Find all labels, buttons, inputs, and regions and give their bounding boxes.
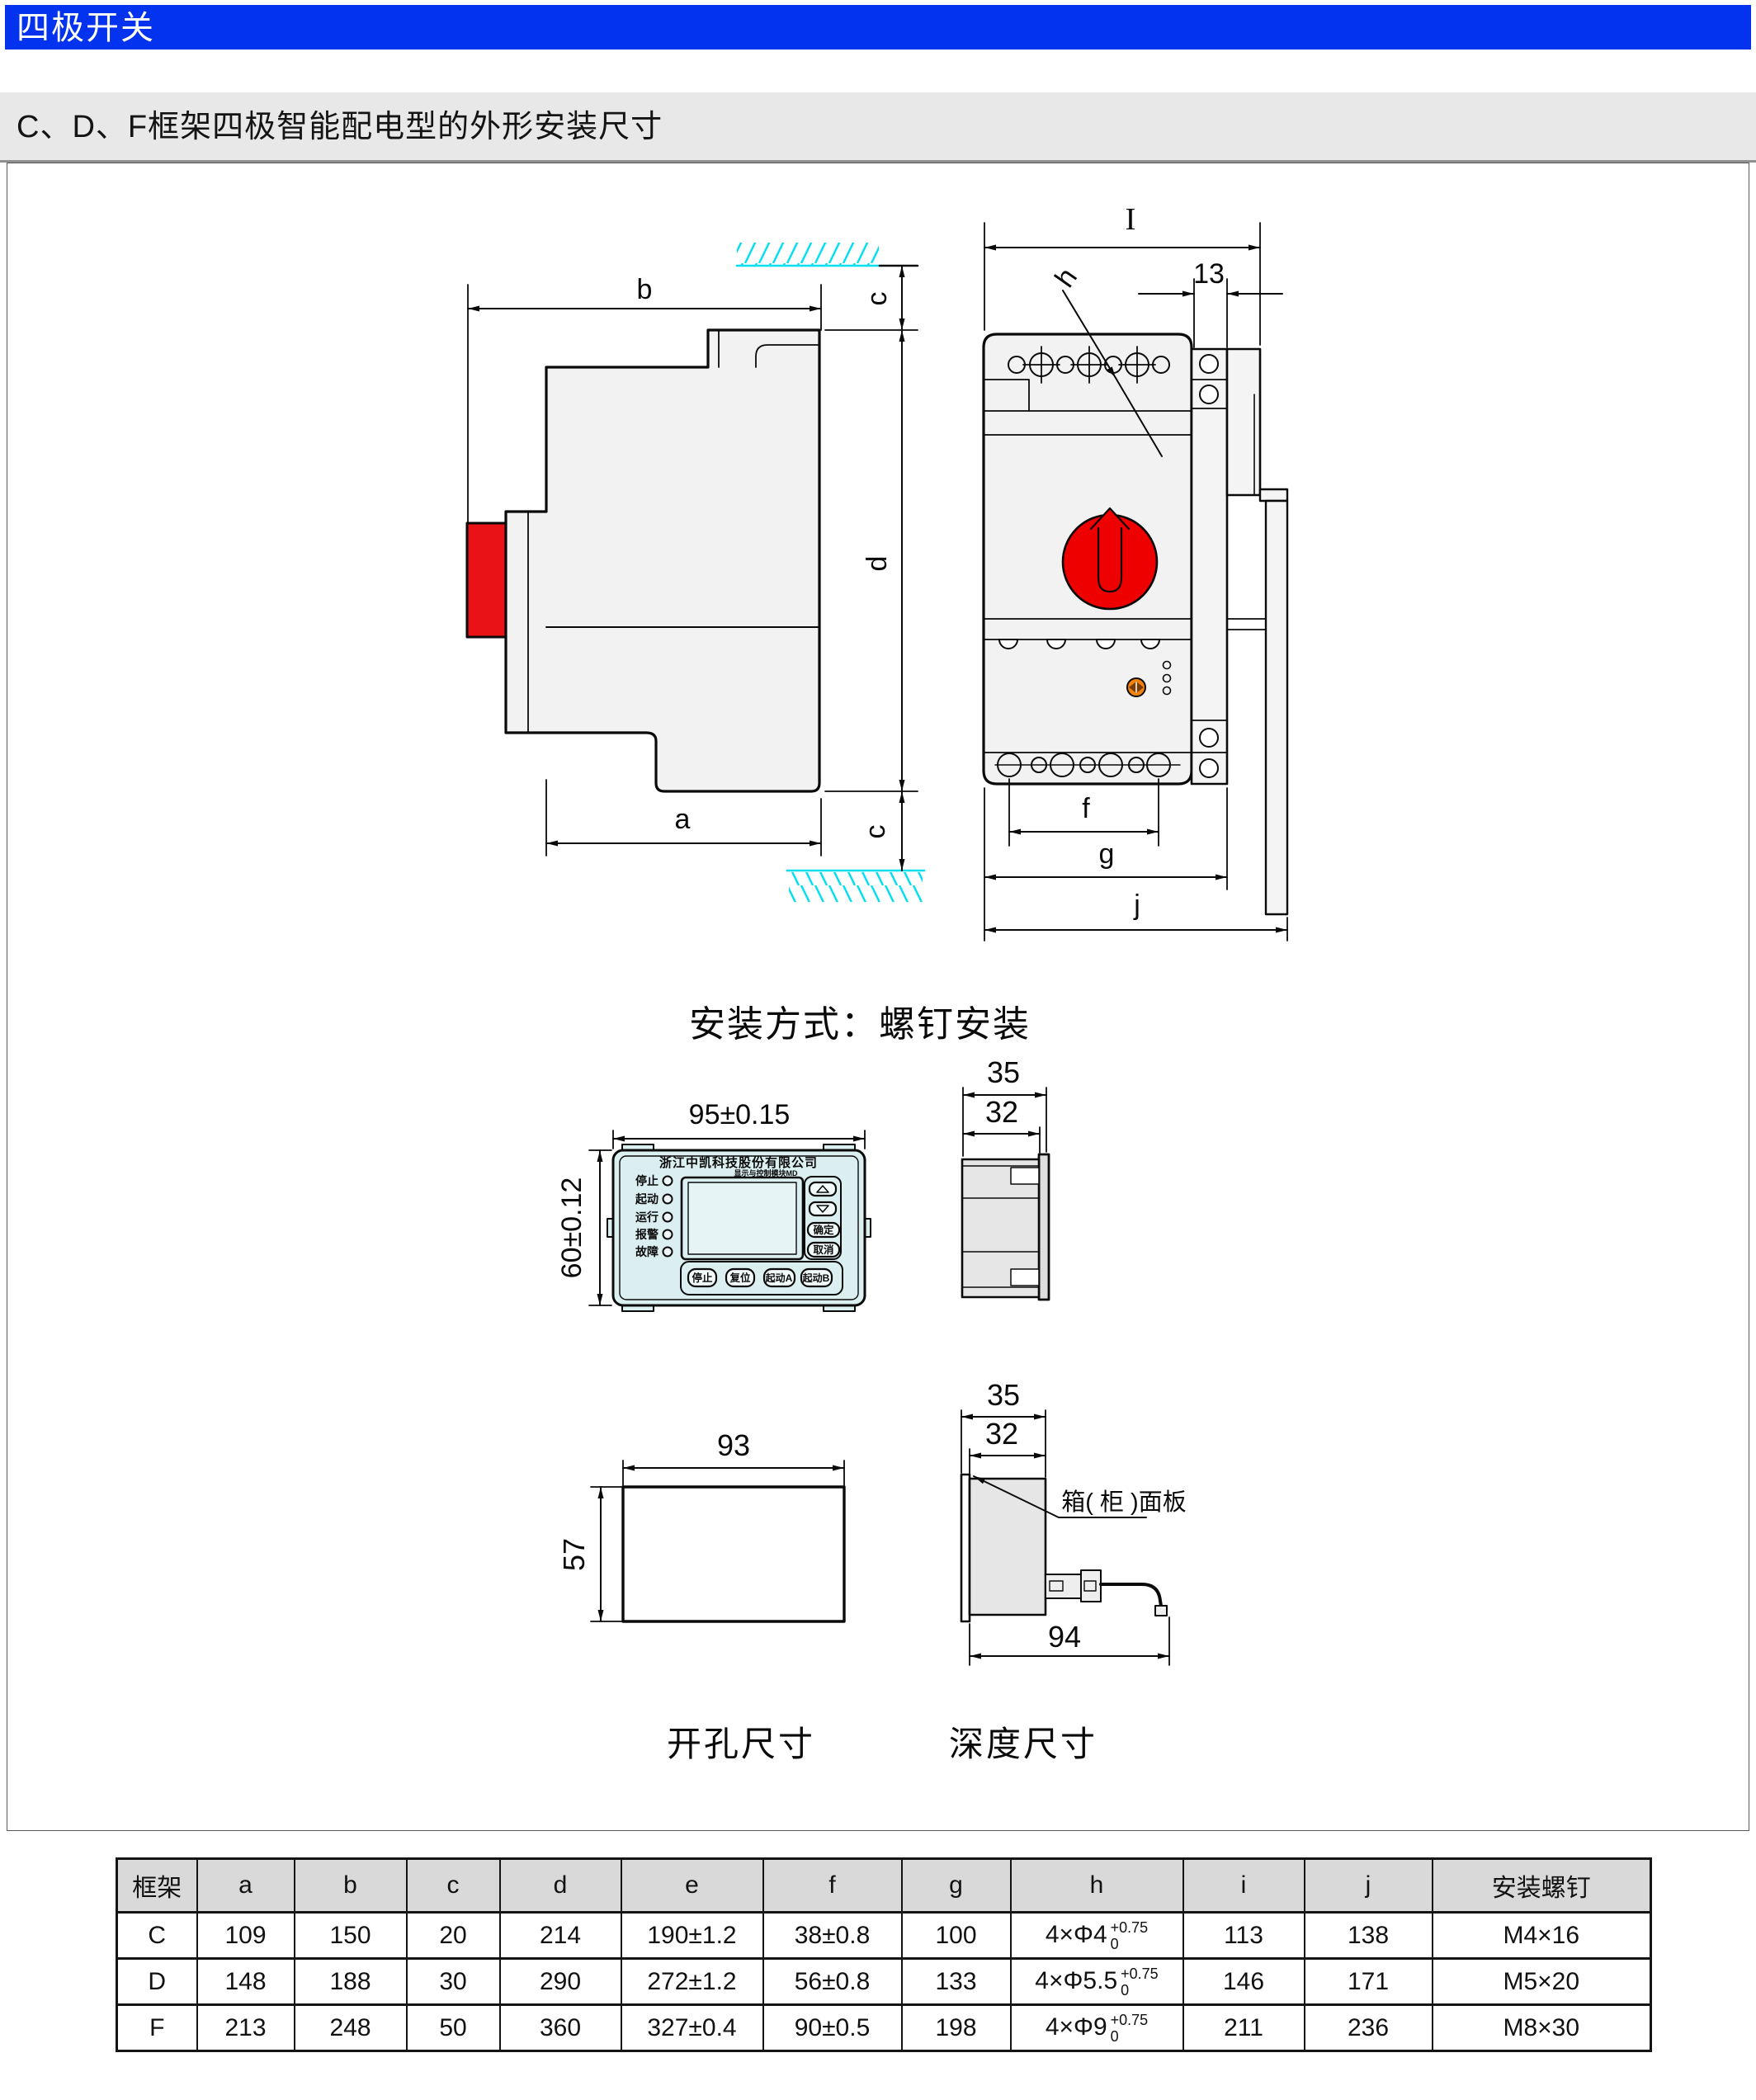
dim-cutout-height (591, 1487, 621, 1621)
cell-c: 50 (407, 2005, 500, 2051)
ok-button-label: 确定 (813, 1224, 834, 1236)
col-j: j (1305, 1859, 1433, 1913)
dim-label-side-32: 32 (985, 1095, 1018, 1129)
col-c: c (407, 1859, 500, 1913)
cell-frame: F (117, 2005, 197, 2051)
dim-label-panel-height: 60±0.12 (556, 1177, 588, 1279)
dim-label-j: j (1133, 890, 1140, 921)
ground-hatch-bottom (787, 871, 924, 902)
cell-a: 213 (197, 2005, 295, 2051)
cell-j: 236 (1305, 2005, 1433, 2051)
start-b-button-label: 起动B (802, 1272, 830, 1284)
col-b: b (295, 1859, 407, 1913)
up-button (810, 1182, 836, 1196)
cell-c: 30 (407, 1959, 500, 2005)
panel-side-flange (1039, 1154, 1049, 1300)
cutout-rect (623, 1487, 844, 1621)
rear-connector (1046, 1570, 1101, 1602)
led-label-start: 起动 (635, 1192, 658, 1206)
dim-label-a: a (675, 804, 691, 835)
operating-handle (467, 523, 506, 637)
cell-a: 109 (197, 1913, 295, 1959)
reset-button-label: 复位 (729, 1272, 751, 1284)
tolerance-stack: +0.750 (1111, 1920, 1149, 1951)
cell-j: 171 (1305, 1959, 1433, 2005)
dim-label-13: 13 (1193, 258, 1225, 290)
dim-panel-side-32 (963, 1127, 1040, 1153)
col-a: a (197, 1859, 295, 1913)
col-frame: 框架 (117, 1859, 197, 1913)
ground-hatch-top (737, 243, 918, 266)
panel-side-view: 35 32 (962, 1055, 1049, 1300)
depth-drawing: 箱( 柜 )面板 35 32 94 (961, 1378, 1187, 1665)
led-label-stop: 停止 (635, 1174, 658, 1187)
dim-label-I: I (1126, 202, 1136, 237)
dim-label-depth-94: 94 (1048, 1620, 1081, 1654)
hole-spec: 4×Φ5.5 (1035, 1966, 1117, 1994)
cell-screw: M4×16 (1433, 1913, 1651, 1959)
test-screw (1127, 678, 1145, 696)
col-e: e (621, 1859, 763, 1913)
din-rail-bracket (1192, 349, 1287, 914)
cell-h: 4×Φ4+0.750 (1011, 1913, 1183, 1959)
cell-g: 198 (902, 2005, 1011, 2051)
dim-label-depth-32: 32 (985, 1417, 1018, 1451)
cutout-drawing: 93 57 (557, 1428, 844, 1621)
panel-module-name: 显示与控制模块MD (734, 1168, 798, 1177)
cell-frame: D (117, 1959, 197, 2005)
cell-h: 4×Φ5.5+0.750 (1011, 1959, 1183, 2005)
dim-label-panel-width: 95±0.15 (689, 1099, 791, 1130)
dim-label-depth-35: 35 (987, 1378, 1020, 1412)
cell-screw: M5×20 (1433, 1959, 1651, 2005)
dim-label-c-bottom: c (860, 825, 891, 839)
cell-d: 290 (500, 1959, 621, 2005)
dim-label-d: d (861, 556, 893, 572)
cancel-button-label: 取消 (813, 1243, 834, 1256)
cabinet-panel-plate (961, 1475, 970, 1621)
c ell-i: 211 (1183, 2005, 1305, 2051)
cell-c: 20 (407, 1913, 500, 1959)
dim-label-side-35: 35 (987, 1055, 1020, 1089)
dim-j (984, 918, 1287, 941)
cell-j: 138 (1305, 1913, 1433, 1959)
col-h: h (1011, 1859, 1183, 1913)
dimension-table: 框架 a b c d e f g h i j 安装螺钉 C 109 150 20… (116, 1857, 1652, 2052)
led-label-run: 运行 (635, 1210, 658, 1224)
col-g: g (902, 1859, 1011, 1913)
cell-e: 272±1.2 (621, 1959, 763, 2005)
cell-g: 100 (902, 1913, 1011, 1959)
table-row: F 213 248 50 360 327±0.4 90±0.5 198 4×Φ9… (117, 2005, 1651, 2051)
dim-label-b: b (637, 274, 653, 305)
cell-e: 190±1.2 (621, 1913, 763, 1959)
table-row: D 148 188 30 290 272±1.2 56±0.8 133 4×Φ5… (117, 1959, 1651, 2005)
hole-spec: 4×Φ4 (1046, 1920, 1107, 1947)
cable-tip (1155, 1606, 1167, 1616)
dim-label-cutout-width: 93 (717, 1428, 750, 1462)
cell-b: 248 (295, 2005, 407, 2051)
dim-label-f: f (1082, 793, 1090, 824)
cell-i: 146 (1183, 1959, 1305, 2005)
cell-d: 360 (500, 2005, 621, 2051)
technical-drawing: b c d a c (0, 0, 1756, 2100)
dim-cutout-width (623, 1461, 844, 1485)
panel-company-name: 浙江中凯科技股份有限公司 (659, 1155, 818, 1170)
hole-spec: 4×Φ9 (1046, 2013, 1107, 2040)
tolerance-stack: +0.750 (1121, 1966, 1159, 1998)
panel-callout-label: 箱( 柜 )面板 (1061, 1489, 1186, 1516)
down-button (810, 1202, 836, 1215)
table-header-row: 框架 a b c d e f g h i j 安装螺钉 (117, 1859, 1651, 1913)
cell-f: 90±0.5 (763, 2005, 902, 2051)
breaker-side-body (506, 330, 819, 791)
cell-screw: M8×30 (1433, 2005, 1651, 2051)
cell-b: 150 (295, 1913, 407, 1959)
dim-label-c-top: c (861, 292, 893, 306)
col-d: d (500, 1859, 621, 1913)
dim-label-g: g (1099, 838, 1115, 870)
cell-h: 4×Φ9+0.750 (1011, 2005, 1183, 2051)
dim-depth-32 (970, 1449, 1046, 1475)
led-label-fault: 故障 (635, 1245, 658, 1258)
breaker-front-view: I 13 h f (984, 202, 1287, 941)
cell-e: 327±0.4 (621, 2005, 763, 2051)
col-screw: 安装螺钉 (1433, 1859, 1651, 1913)
cell-i: 113 (1183, 1913, 1305, 1959)
table-row: C 109 150 20 214 190±1.2 38±0.8 100 4×Φ4… (117, 1913, 1651, 1959)
dim-label-h: h (1049, 262, 1083, 293)
cell-g: 133 (902, 1959, 1011, 2005)
col-i: i (1183, 1859, 1305, 1913)
stop-button-label: 停止 (692, 1272, 713, 1284)
document-page: 四极开关 C、D、F框架四极智能配电型的外形安装尺寸 安装方式：螺钉安装 开孔尺… (0, 0, 1756, 2100)
dim-label-cutout-height: 57 (557, 1538, 591, 1571)
display-panel-drawing: 浙江中凯科技股份有限公司 显示与控制模块MD 停止 起动 运行 报警 故障 (556, 1099, 871, 1311)
col-f: f (763, 1859, 902, 1913)
cell-frame: C (117, 1913, 197, 1959)
cell-f: 38±0.8 (763, 1913, 902, 1959)
cell-d: 214 (500, 1913, 621, 1959)
cell-f: 56±0.8 (763, 1959, 902, 2005)
tolerance-stack: +0.750 (1111, 2013, 1149, 2044)
start-a-button-label: 起动A (765, 1272, 793, 1284)
led-label-alarm: 报警 (635, 1228, 658, 1241)
depth-body (970, 1479, 1046, 1615)
cell-b: 188 (295, 1959, 407, 2005)
cable (1101, 1584, 1161, 1606)
breaker-side-view: b c d a c (467, 243, 924, 902)
cell-a: 148 (197, 1959, 295, 2005)
